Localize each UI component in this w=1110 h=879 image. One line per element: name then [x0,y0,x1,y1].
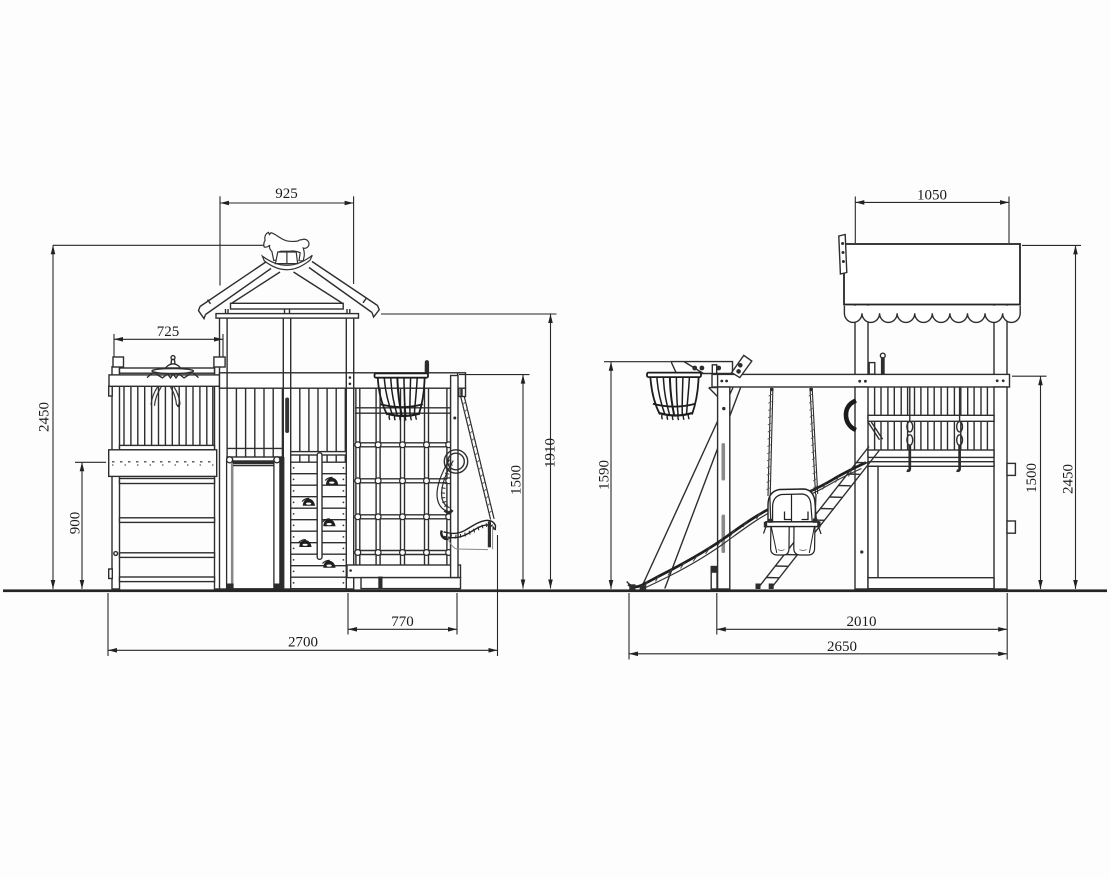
svg-text:2010: 2010 [847,614,877,630]
svg-text:2700: 2700 [288,635,318,651]
svg-text:725: 725 [157,324,180,340]
svg-text:2450: 2450 [37,402,53,432]
svg-text:1500: 1500 [509,465,525,495]
svg-text:925: 925 [275,186,298,202]
svg-text:1050: 1050 [917,187,947,203]
svg-text:1910: 1910 [543,438,559,468]
svg-text:1500: 1500 [1024,463,1040,493]
svg-text:770: 770 [391,614,414,630]
svg-text:1590: 1590 [597,460,613,490]
svg-text:900: 900 [68,512,84,535]
svg-text:2450: 2450 [1061,464,1077,494]
svg-text:2650: 2650 [827,639,857,655]
